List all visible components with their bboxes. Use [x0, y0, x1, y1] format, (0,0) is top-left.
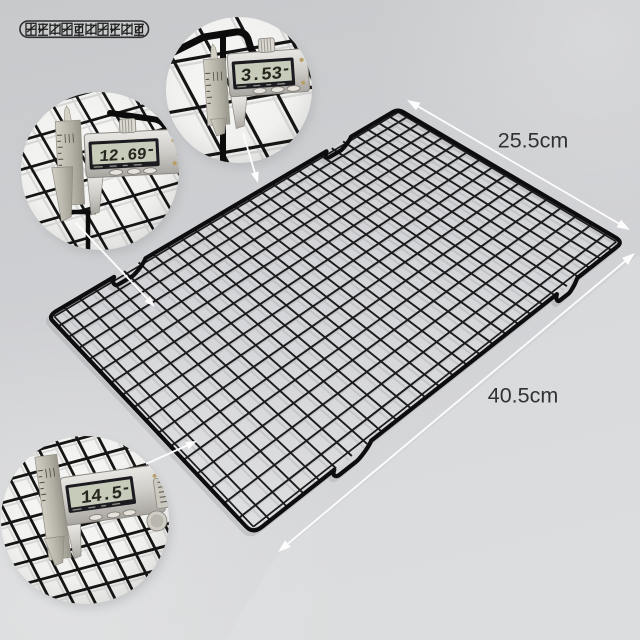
svg-text:3.53: 3.53 [240, 64, 282, 87]
svg-text:25.5cm: 25.5cm [498, 129, 569, 153]
svg-text:12.69: 12.69 [99, 145, 147, 166]
svg-text:40.5cm: 40.5cm [488, 384, 559, 408]
